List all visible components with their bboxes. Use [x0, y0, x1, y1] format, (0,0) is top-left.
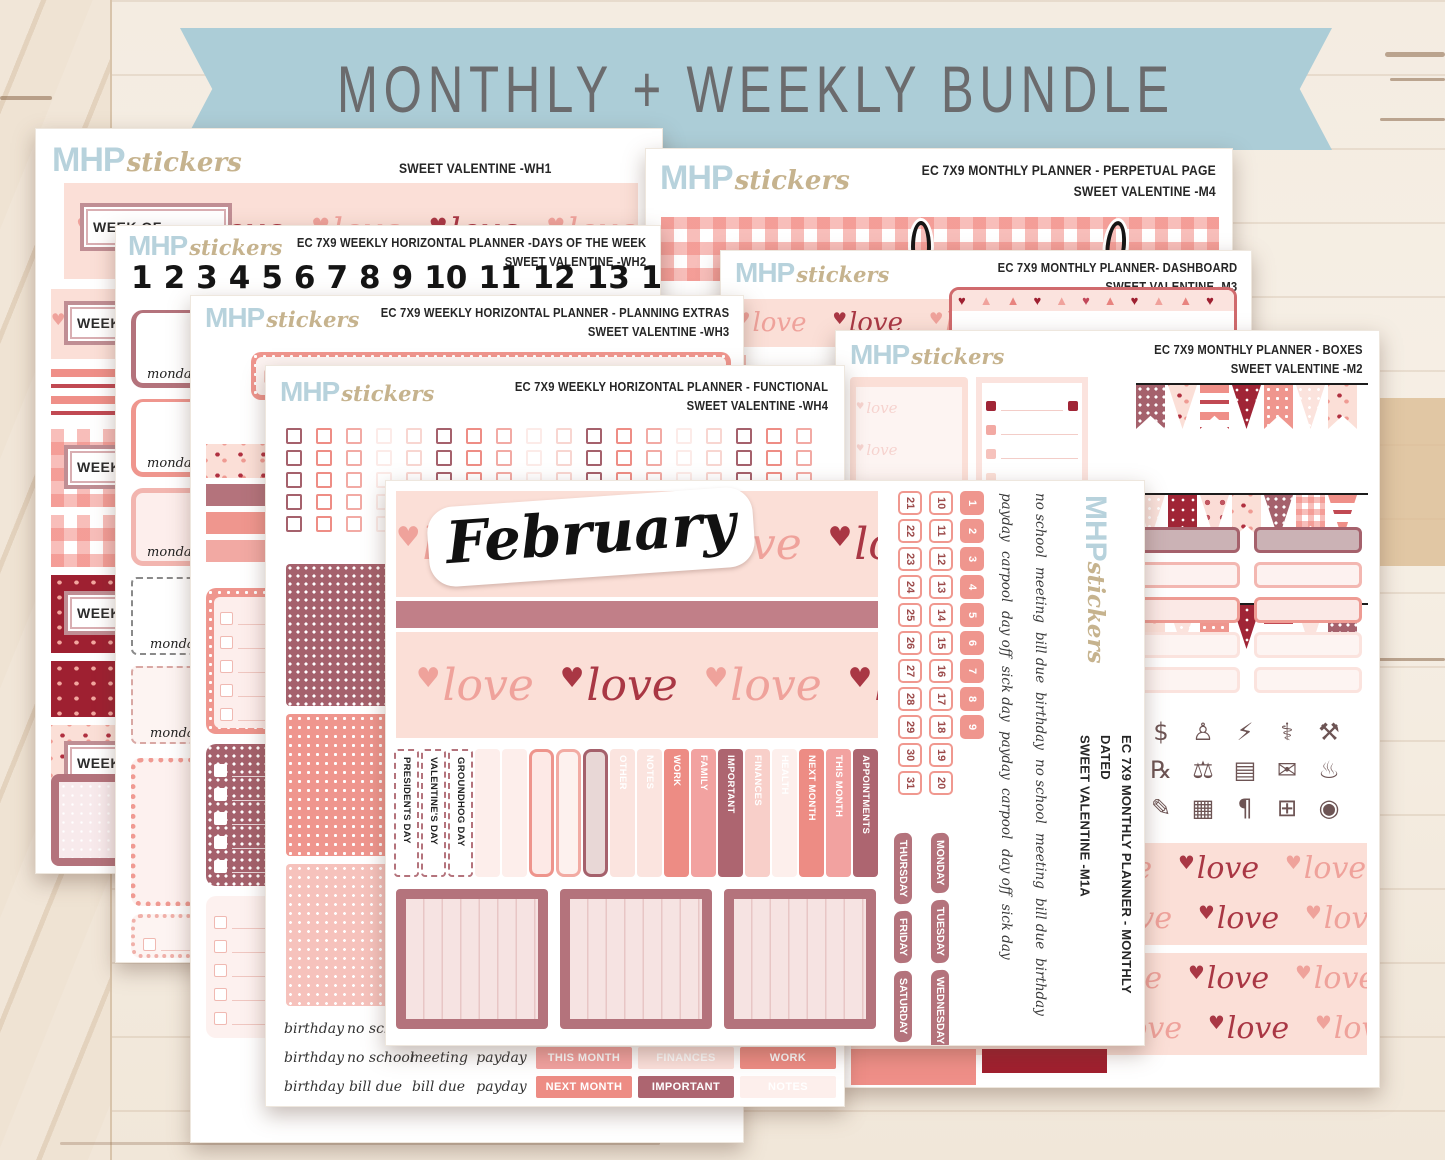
flag-shape [1328, 385, 1357, 429]
heart-icon: ♥ [396, 522, 420, 553]
checkbox [466, 428, 482, 444]
m2-label-box [1132, 597, 1240, 623]
heart-icon: ♥ [958, 293, 966, 308]
date-square: 25 [904, 609, 916, 621]
category-label: THIS MONTH [536, 1047, 632, 1069]
heart-icon: ▲ [1007, 293, 1020, 308]
love-word: love [1324, 901, 1367, 936]
checkbox [214, 1012, 227, 1025]
checkbox [706, 450, 722, 466]
checkbox [616, 428, 632, 444]
category-label: NOTES [740, 1076, 836, 1098]
love-word: love [1314, 961, 1367, 996]
love-script: ♥love [1295, 961, 1367, 996]
sheet-m4-title: EC 7X9 MONTHLY PLANNER - PERPETUAL PAGE … [922, 161, 1216, 203]
love-word: love [1334, 1011, 1367, 1046]
date-square: 4 [966, 584, 978, 590]
m1a-category-tab: WORK [664, 749, 689, 877]
love-word: love [854, 519, 878, 570]
checkbox [586, 450, 602, 466]
date-square: 31 [904, 777, 916, 789]
wood-streak [1385, 52, 1445, 57]
date-square: 17 [935, 693, 947, 705]
love-word: love [866, 399, 897, 417]
love-word: love [442, 660, 533, 711]
script-word: meeting [1032, 833, 1048, 889]
script-word: birthday [284, 1021, 341, 1037]
category-label-text: IMPORTANT [652, 1081, 720, 1093]
m1a-dates-10-20: 1011121314151617181920 [929, 491, 953, 799]
m1a-category-tab: APPOINTMENTS [853, 749, 878, 877]
date-square: 28 [904, 693, 916, 705]
flag-shape [1168, 385, 1197, 429]
checkbox [346, 428, 362, 444]
checkbox [214, 916, 227, 929]
script-word: payday [998, 731, 1014, 780]
bullet-square [986, 449, 996, 459]
checkbox [316, 428, 332, 444]
checkbox [406, 428, 422, 444]
doodle-icon: ⚡ [1237, 718, 1254, 746]
doodle-icon: ▦ [1192, 794, 1215, 822]
date-square: 5 [966, 612, 978, 618]
script-word: bill due [347, 1079, 404, 1095]
wh4-bottom-row: birthday bill due bill due payday NEXT M… [284, 1076, 836, 1098]
mhp-logo: MHPstickers [660, 161, 850, 195]
tab-label: THIS MONTH [833, 755, 844, 817]
checkbox [646, 450, 662, 466]
heart-icon: ♥ [1295, 963, 1312, 984]
wood-streak [1390, 78, 1445, 81]
heart-icon: ♥ [856, 401, 864, 412]
flag-shape [1296, 385, 1325, 429]
checkbox [406, 450, 422, 466]
checkbox [526, 428, 542, 444]
date-square: 21 [904, 497, 916, 509]
tab-label: FINANCES [752, 755, 763, 806]
date-square: 9 [966, 724, 978, 730]
doodle-icon: ▤ [1234, 756, 1257, 784]
logo-stickers: stickers [266, 307, 359, 332]
logo-stickers: stickers [127, 148, 242, 178]
logo-mhp: MHP [850, 339, 909, 370]
day-of-week-tab: TUESDAY [931, 899, 949, 963]
m2-box-row [1132, 527, 1362, 553]
checkbox [736, 428, 752, 444]
logo-mhp: MHP [735, 257, 794, 288]
doodle-icon: ✉ [1277, 756, 1297, 784]
checkbox [214, 836, 227, 849]
checkbox [214, 812, 227, 825]
checkbox [286, 472, 302, 488]
script-word: day off [998, 849, 1014, 895]
sheet-wh1-title: SWEET VALENTINE -WH1 [399, 159, 552, 180]
m1a-day-tabs: THURSDAYFRIDAYSATURDAYSUNDAY [894, 833, 912, 1046]
mhp-logo: MHPstickers [205, 304, 359, 332]
date-square: 29 [904, 721, 916, 733]
checkbox [796, 428, 812, 444]
checkbox [556, 450, 572, 466]
doodle-icon: ♨ [1318, 756, 1340, 784]
wh4-bottom-row: birthday no school meeting payday THIS M… [284, 1047, 836, 1069]
checkbox [766, 428, 782, 444]
love-word: love [1227, 1011, 1289, 1046]
heart-icon: ♥ [1131, 293, 1139, 308]
m1a-note-box [396, 889, 548, 1029]
checkbox [526, 450, 542, 466]
script-word: payday [473, 1079, 530, 1095]
checkbox [316, 516, 332, 532]
sheet-wh1-code: SWEET VALENTINE -WH1 [399, 159, 552, 180]
checklist-row [986, 435, 1078, 459]
sheet-m1a: ♥love♥love♥love♥love♥love♥love ♥love♥lov… [385, 480, 1145, 1046]
script-word: sick day [998, 904, 1014, 960]
heart-icon: ♥ [929, 309, 943, 328]
heart-icon: ♥ [1206, 293, 1214, 308]
m1a-note-box [560, 889, 712, 1029]
date-number: 5 [261, 260, 283, 296]
m2-box-row [1132, 562, 1362, 588]
date-number: 6 [294, 260, 316, 296]
logo-mhp: MHP [205, 302, 264, 333]
category-label: IMPORTANT [638, 1076, 734, 1098]
date-square: 7 [966, 668, 978, 674]
m2-bunting-row [1136, 383, 1368, 429]
checkbox [214, 964, 227, 977]
tab-label: HEALTH [779, 755, 790, 795]
love-word: love [1217, 901, 1279, 936]
heart-icon: ♥ [1198, 903, 1215, 924]
tab-label: PRESIDENTS DAY [401, 757, 412, 844]
product-photo: MONTHLY + WEEKLY BUNDLE MHPstickers SWEE… [0, 0, 1445, 1160]
wood-streak [0, 96, 52, 100]
sheet-m1a-line2: SWEET VALENTINE -M1A [1074, 735, 1095, 1035]
date-square: 15 [935, 637, 947, 649]
date-number: 1 [131, 260, 153, 296]
doodle-icon: $ [1153, 718, 1168, 746]
m1a-category-tab: THIS MONTH [826, 749, 851, 877]
m1a-category-tab: PRESIDENTS DAY [394, 749, 419, 877]
date-number: 4 [229, 260, 251, 296]
heart-icon: ♥ [833, 309, 847, 328]
sheet-m2-title: EC 7X9 MONTHLY PLANNER - BOXES SWEET VAL… [1154, 341, 1363, 380]
script-word: birthday [1032, 958, 1048, 1016]
sheet-wh3-line1: EC 7X9 WEEKLY HORIZONTAL PLANNER - PLANN… [380, 304, 729, 323]
sheet-wh4-line2: SWEET VALENTINE -WH4 [515, 397, 828, 416]
date-square: 10 [935, 497, 947, 509]
m1a-category-tab [556, 749, 581, 877]
heart-icon: ♥ [856, 443, 864, 454]
checkbox-column [286, 428, 302, 532]
doodle-icon: ⚖ [1192, 756, 1214, 784]
category-label: NEXT MONTH [536, 1076, 632, 1098]
heart-icon: ♥ [1285, 853, 1302, 874]
category-label-text: WORK [770, 1052, 806, 1064]
mhp-logo: MHPstickers [52, 143, 242, 177]
script-word: bill due [410, 1079, 467, 1095]
m1a-note-boxes [396, 889, 876, 1029]
bunting-flag [1232, 385, 1261, 429]
m2-label-box [1132, 562, 1240, 588]
logo-stickers: stickers [1082, 562, 1109, 664]
date-square: 26 [904, 637, 916, 649]
tab-label: APPOINTMENTS [860, 755, 871, 834]
checkbox [346, 516, 362, 532]
tab-label: VALENTINE'S DAY [428, 757, 439, 845]
checkbox [316, 450, 332, 466]
checkbox [646, 428, 662, 444]
script-word: meeting [1032, 567, 1048, 623]
logo-stickers: stickers [189, 235, 282, 260]
love-word: love [730, 660, 821, 711]
m1a-category-tab: OTHER [610, 749, 635, 877]
m2-label-box [1254, 597, 1362, 623]
tab-label: NEXT MONTH [806, 755, 817, 821]
date-square: 6 [966, 640, 978, 646]
checkbox [436, 450, 452, 466]
love-script: ♥love [560, 660, 678, 711]
sheet-m1a-title: EC 7X9 MONTHLY PLANNER - MONTHLY DATED S… [1074, 735, 1136, 1035]
date-square: 24 [904, 581, 916, 593]
m2-box-row [1132, 667, 1362, 693]
checkbox [220, 612, 233, 625]
heart-icon: ♥ [848, 663, 872, 694]
checkbox [220, 684, 233, 697]
checkbox [214, 764, 227, 777]
love-script: ♥love [1198, 901, 1279, 936]
script-word: day off [998, 611, 1014, 657]
m2-box-row [1132, 597, 1362, 623]
m1a-category-tab [529, 749, 554, 877]
sheet-m2-line2: SWEET VALENTINE -M2 [1154, 360, 1363, 379]
date-square: 27 [904, 665, 916, 677]
m2-label-box [1132, 632, 1240, 658]
date-number: 11 [478, 260, 521, 296]
heart-icon: ♥ [416, 663, 440, 694]
checkbox [346, 494, 362, 510]
wh2-date-numbers: 123456789101112131415161718 [131, 260, 661, 296]
bunting-flag [1200, 385, 1229, 429]
checkbox [706, 428, 722, 444]
day-of-week-tab: MONDAY [931, 832, 949, 893]
m1a-category-tab: NEXT MONTH [799, 749, 824, 877]
date-square: 18 [935, 721, 947, 733]
wood-plank [1378, 398, 1445, 566]
checkbox [586, 428, 602, 444]
sheet-wh4-title: EC 7X9 WEEKLY HORIZONTAL PLANNER - FUNCT… [515, 378, 828, 417]
doodle-icon: ⚒ [1318, 718, 1340, 746]
checkbox [214, 788, 227, 801]
m2-label-box [1254, 667, 1362, 693]
day-of-week-tab: WEDNESDAY [931, 969, 949, 1046]
m3-hearts-border: ♥▲▲♥▲♥▲♥▲▲♥ [952, 290, 1234, 311]
date-number: 3 [196, 260, 218, 296]
checkbox [214, 940, 227, 953]
logo-mhp: MHP [660, 159, 733, 197]
flag-shape [1232, 385, 1261, 429]
checkbox [286, 494, 302, 510]
m1a-category-tab: NOTES [637, 749, 662, 877]
checkbox [286, 450, 302, 466]
bunting-flag [1296, 385, 1325, 429]
date-square: 19 [935, 749, 947, 761]
m1a-category-tab [583, 749, 608, 877]
checklist-row [986, 411, 1078, 435]
category-label-text: NEXT MONTH [546, 1081, 623, 1093]
checkbox [316, 472, 332, 488]
bunting-flag [1328, 385, 1357, 429]
m2-salmon-block [851, 1049, 976, 1085]
mhp-logo: MHPstickers [735, 259, 889, 287]
bunting-flag [1136, 385, 1165, 429]
doodle-icon: ⚕ [1281, 718, 1294, 746]
checkbox [346, 472, 362, 488]
category-label-text: FINANCES [656, 1052, 715, 1064]
heart-icon: ♥ [828, 522, 852, 553]
love-word: love [874, 660, 878, 711]
checklist-line [1001, 410, 1063, 411]
script-word: no school [1032, 759, 1048, 824]
date-square: 30 [904, 749, 916, 761]
checkbox [676, 450, 692, 466]
checkbox [376, 450, 392, 466]
script-word: sick day [998, 666, 1014, 722]
sheet-m4-line1: EC 7X9 MONTHLY PLANNER - PERPETUAL PAGE [922, 161, 1216, 182]
script-word: bill due [1032, 632, 1048, 683]
date-square: 16 [935, 665, 947, 677]
sheet-m1a-line1: EC 7X9 MONTHLY PLANNER - MONTHLY DATED [1094, 735, 1136, 1035]
checkbox [214, 988, 227, 1001]
m1a-tabs-row: PRESIDENTS DAY VALENTINE'S DAY GROUNDHOG… [394, 749, 880, 877]
love-script: ♥love [416, 660, 534, 711]
date-square: 8 [966, 696, 978, 702]
checklist-line [1001, 434, 1078, 435]
logo-mhp: MHP [1079, 495, 1112, 562]
checkbox [766, 450, 782, 466]
sheet-m4-line2: SWEET VALENTINE -M4 [922, 182, 1216, 203]
love-script: ♥love [856, 441, 898, 459]
checklist-row [986, 387, 1078, 411]
m2-label-box [1254, 562, 1362, 588]
doodle-icon: ⊞ [1277, 794, 1297, 822]
love-script: ♥love [848, 660, 878, 711]
checkbox [346, 450, 362, 466]
tab-label: OTHER [617, 755, 628, 790]
sheet-wh2-line1: EC 7X9 WEEKLY HORIZONTAL PLANNER -DAYS O… [297, 234, 646, 253]
sheet-m3-line1: EC 7X9 MONTHLY PLANNER- DASHBOARD [997, 259, 1237, 278]
m1a-day-tabs: MONDAYTUESDAYWEDNESDAY [931, 833, 949, 1046]
m1a-note-box [724, 889, 876, 1029]
day-of-week-tab: SATURDAY [894, 970, 912, 1042]
heart-icon: ♥ [560, 663, 584, 694]
logo-stickers: stickers [796, 262, 889, 287]
date-number: 9 [392, 260, 414, 296]
date-number: 8 [359, 260, 381, 296]
date-number: 7 [326, 260, 348, 296]
bunting-flag [1264, 385, 1293, 429]
flag-shape [1136, 385, 1165, 429]
checkbox [796, 450, 812, 466]
date-square: 3 [966, 556, 978, 562]
logo-stickers: stickers [735, 166, 850, 196]
heart-icon: ▲ [980, 293, 993, 308]
sheet-m2-line1: EC 7X9 MONTHLY PLANNER - BOXES [1154, 341, 1363, 360]
tab-label: IMPORTANT [725, 755, 736, 813]
love-script: ♥love [1315, 1011, 1367, 1046]
wood-streak [1380, 118, 1445, 121]
heart-icon: ▲ [1104, 293, 1117, 308]
love-word: love [1207, 961, 1269, 996]
date-number: 12 [532, 260, 575, 296]
checkbox [214, 860, 227, 873]
category-label-text: THIS MONTH [548, 1052, 620, 1064]
script-word: meeting [410, 1050, 467, 1066]
date-square: 12 [935, 553, 947, 565]
m1a-category-tab: GROUNDHOG DAY [448, 749, 473, 877]
date-square: 23 [904, 553, 916, 565]
day-of-week-tab: FRIDAY [894, 911, 912, 964]
category-label: WORK [740, 1047, 836, 1069]
logo-mhp: MHP [280, 376, 339, 407]
checkbox [220, 660, 233, 673]
bullet-square [986, 401, 996, 411]
script-word: payday [473, 1050, 530, 1066]
love-word: love [866, 441, 897, 459]
m1a-category-tab [502, 749, 527, 877]
m1a-category-tab: VALENTINE'S DAY [421, 749, 446, 877]
tab-label: NOTES [644, 755, 655, 789]
love-script: ♥love [1305, 901, 1367, 936]
wood-streak [1378, 658, 1445, 661]
script-word: carpool [998, 551, 1014, 602]
date-square: 2 [966, 528, 978, 534]
checkbox [376, 428, 392, 444]
tab-label: FAMILY [698, 755, 709, 791]
bullet-square [1068, 401, 1078, 411]
m2-label-box [1254, 632, 1362, 658]
date-number: 10 [424, 260, 467, 296]
checkbox [220, 636, 233, 649]
checkbox [496, 450, 512, 466]
checkbox-column [346, 428, 362, 532]
love-script: ♥love [704, 660, 822, 711]
m1a-dates-1-9: 123456789 [960, 491, 984, 743]
tab-label: GROUNDHOG DAY [455, 757, 466, 847]
checkbox [736, 450, 752, 466]
m1a-word-column: no schoolmeetingbill duebirthdayno schoo… [1032, 493, 1048, 873]
m2-box-row [1132, 632, 1362, 658]
heart-icon: ♥ [1208, 1013, 1225, 1034]
heart-icon: ♥ [1033, 293, 1041, 308]
checkbox [220, 708, 233, 721]
checkbox [556, 428, 572, 444]
script-word: bill due [1032, 898, 1048, 949]
m2-red-strip [982, 1049, 1107, 1073]
mhp-logo: MHPstickers [128, 232, 282, 260]
doodle-icon: ¶ [1237, 794, 1252, 822]
checkbox [496, 428, 512, 444]
m1a-dates-21-31: 2122232425262728293031 [898, 491, 922, 799]
script-word: carpool [998, 788, 1014, 839]
checkbox [616, 450, 632, 466]
love-script: ♥love [828, 519, 878, 570]
script-word: payday [998, 493, 1014, 542]
category-label: FINANCES [638, 1047, 734, 1069]
checkbox [676, 428, 692, 444]
logo-mhp: MHP [128, 230, 187, 261]
script-word: no school [347, 1050, 404, 1066]
date-number: 2 [164, 260, 186, 296]
